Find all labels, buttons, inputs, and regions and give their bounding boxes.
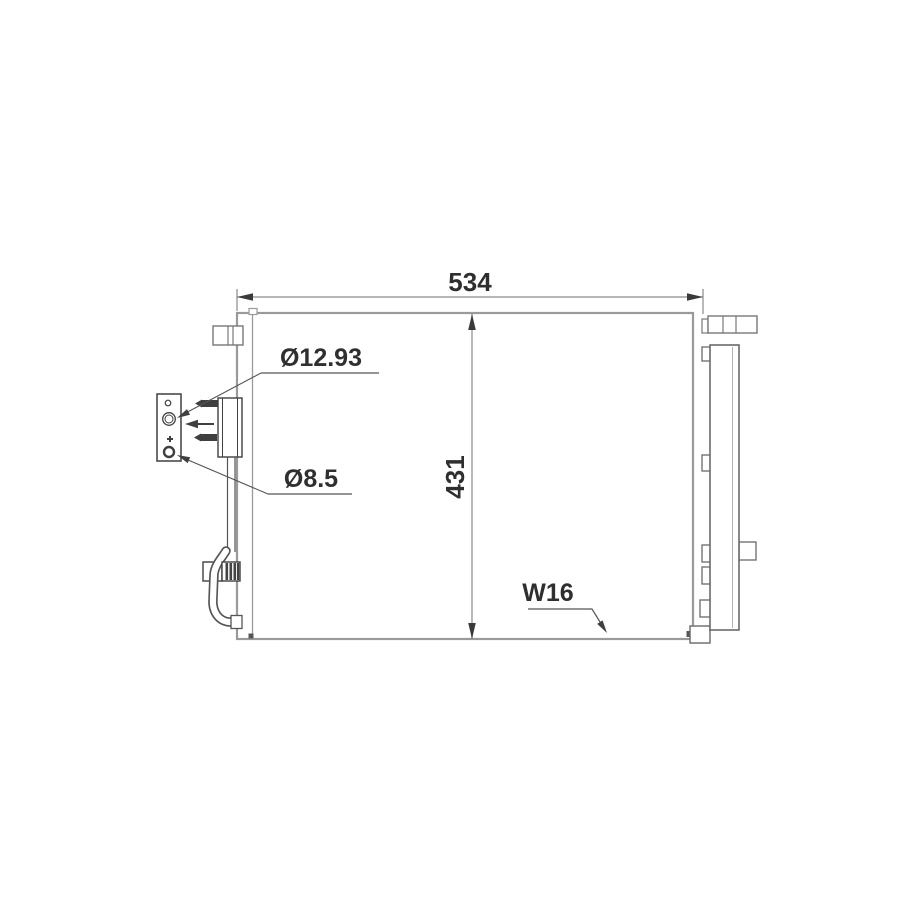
connector-block-outline [218, 398, 242, 457]
drier-cylinder-outline [710, 345, 739, 630]
top-left-corner-notch [249, 309, 257, 315]
bolt-bottom [201, 434, 217, 441]
bolt-bottom-tip-icon [194, 434, 201, 442]
clamp-hatch-bar [226, 563, 229, 580]
pipe-connector-block [218, 398, 242, 457]
assembly-arrow-icon [185, 420, 198, 428]
assembly-bolts [185, 400, 218, 442]
top-right-bracket-outline [708, 316, 757, 333]
height-dimension-value: 431 [440, 455, 470, 498]
top-right-mount-bracket [702, 316, 757, 333]
hole-large-label: Ø12.93 [280, 344, 362, 372]
tube-width-label: W16 [522, 579, 573, 607]
drier-bottom-mount [690, 626, 710, 643]
dimension-arrow-left-icon [237, 293, 253, 301]
dimension-width: 534 [237, 267, 703, 314]
hole-small-label: Ø8.5 [284, 465, 338, 493]
drier-right-tab [739, 542, 756, 560]
clamp-hatch-bar [237, 563, 239, 580]
top-right-bracket-tab [702, 319, 708, 333]
dimension-arrow-right-icon [687, 293, 703, 301]
top-left-mount-bracket [213, 326, 243, 345]
width-dimension-value: 534 [448, 267, 492, 297]
receiver-drier [690, 345, 756, 643]
condenser-technical-drawing: 534 431 Ø12.93 Ø8.5 W16 [0, 0, 915, 915]
clamp-hatch-bar [230, 563, 233, 580]
inlet-flange-plate [157, 394, 181, 461]
pipe-end-fitting [231, 616, 242, 629]
drawing-canvas: 534 431 Ø12.93 Ø8.5 W16 [0, 0, 915, 915]
clamp-hatch-bar [234, 563, 237, 580]
flange-plate-outline [157, 394, 181, 461]
bottom-left-joint-mark [249, 634, 254, 639]
